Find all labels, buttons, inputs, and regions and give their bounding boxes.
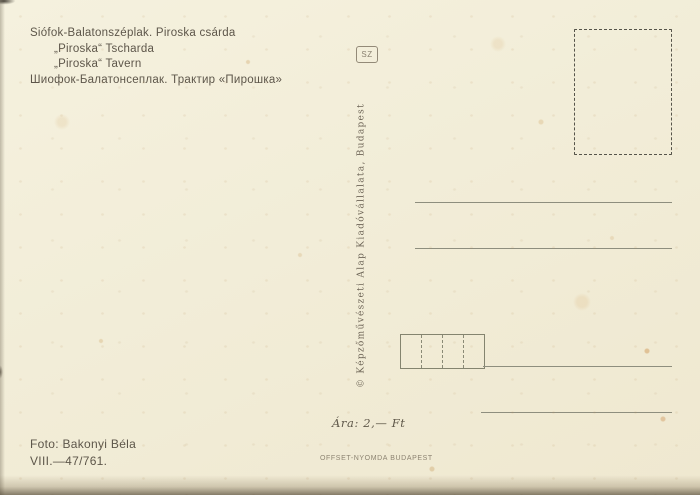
- publisher-mark-text: SZ: [361, 50, 372, 59]
- address-line-4: [481, 412, 672, 413]
- address-line-1: [415, 202, 672, 203]
- postal-code-box: [400, 334, 485, 369]
- caption-block: Siófok-Balatonszéplak. Piroska csárda „P…: [30, 26, 282, 88]
- caption-russian: Шиофок-Балатонсеплак. Трактир «Пирошка»: [30, 73, 282, 89]
- publisher-mark-badge: SZ: [356, 46, 378, 63]
- stamp-placement-box: [574, 29, 672, 155]
- caption-hungarian: Siófok-Balatonszéplak. Piroska csárda: [30, 26, 282, 42]
- caption-german: „Piroska“ Tscharda: [30, 42, 282, 58]
- postal-code-cell: [443, 335, 464, 368]
- price-label: Ára: 2,— Ft: [332, 416, 406, 430]
- postal-code-cell: [422, 335, 443, 368]
- publisher-imprint-vertical: © Képzőművészeti Alap Kiadóvállalata, Bu…: [357, 90, 370, 402]
- printer-imprint: OFFSET-NYOMDA BUDAPEST: [320, 455, 433, 462]
- address-line-3: [483, 366, 672, 367]
- photo-credit: Foto: Bakonyi Béla: [30, 436, 136, 453]
- postal-code-cell: [401, 335, 422, 368]
- credit-block: Foto: Bakonyi Béla VIII.—47/761.: [30, 436, 136, 469]
- address-line-2: [415, 248, 672, 249]
- postcard-back: Siófok-Balatonszéplak. Piroska csárda „P…: [0, 0, 700, 495]
- catalog-number: VIII.—47/761.: [30, 453, 136, 470]
- caption-english: „Piroska“ Tavern: [30, 57, 282, 73]
- postal-code-cell: [464, 335, 484, 368]
